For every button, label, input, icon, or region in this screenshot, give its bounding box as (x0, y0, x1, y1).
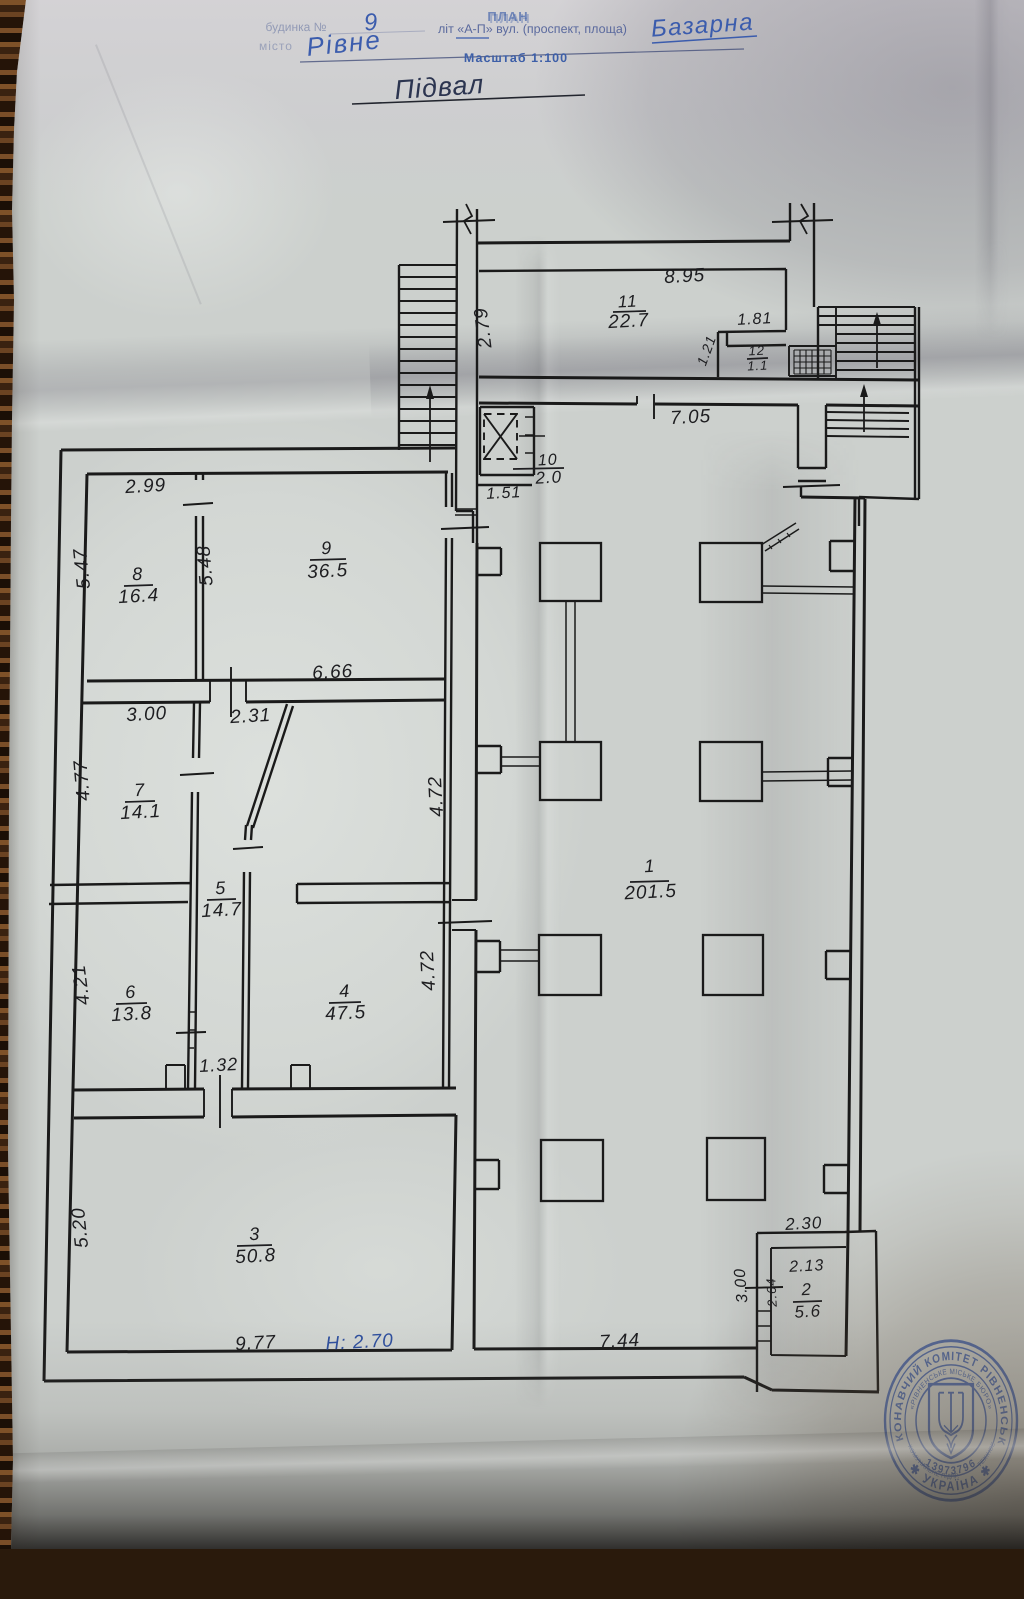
svg-text:2.0: 2.0 (534, 467, 563, 487)
svg-text:8: 8 (132, 564, 144, 585)
svg-text:4.72: 4.72 (417, 949, 440, 991)
svg-text:1.21: 1.21 (693, 333, 719, 368)
svg-text:літ «А-П» вул. (проспект, площ: літ «А-П» вул. (проспект, площа) (438, 22, 627, 36)
svg-text:47.5: 47.5 (325, 1002, 367, 1025)
svg-text:7: 7 (134, 780, 146, 801)
svg-text:8.95: 8.95 (664, 265, 706, 288)
svg-text:3.00: 3.00 (732, 1267, 752, 1303)
svg-text:3.00: 3.00 (126, 703, 168, 726)
svg-text:11: 11 (617, 292, 638, 312)
svg-text:1.51: 1.51 (486, 484, 522, 503)
svg-text:3: 3 (249, 1224, 261, 1245)
svg-text:14.7: 14.7 (201, 899, 243, 922)
svg-text:9: 9 (321, 538, 333, 559)
svg-text:13.8: 13.8 (111, 1003, 153, 1026)
svg-text:7.05: 7.05 (670, 406, 712, 429)
svg-text:2.64: 2.64 (763, 1277, 780, 1308)
svg-text:1.81: 1.81 (737, 310, 773, 329)
svg-text:місто: місто (259, 39, 293, 53)
svg-text:14.1: 14.1 (120, 801, 162, 824)
svg-text:2.99: 2.99 (124, 475, 167, 498)
svg-text:1.1: 1.1 (747, 357, 769, 373)
svg-text:2.31: 2.31 (229, 705, 272, 728)
svg-text:201.5: 201.5 (623, 881, 678, 905)
svg-text:5.48: 5.48 (193, 544, 217, 587)
svg-text:5.20: 5.20 (68, 1206, 93, 1249)
svg-text:36.5: 36.5 (307, 560, 349, 583)
svg-text:5.47: 5.47 (70, 547, 95, 590)
svg-text:6: 6 (125, 982, 137, 1003)
svg-text:4.72: 4.72 (425, 775, 448, 817)
svg-text:22.7: 22.7 (607, 310, 650, 333)
svg-text:Масштаб 1:100: Масштаб 1:100 (464, 51, 568, 65)
svg-text:1.32: 1.32 (199, 1054, 239, 1076)
svg-text:50.8: 50.8 (235, 1245, 277, 1268)
svg-text:9.77: 9.77 (235, 1332, 277, 1355)
svg-text:2.13: 2.13 (788, 1257, 825, 1276)
svg-text:6.66: 6.66 (312, 661, 354, 684)
svg-text:4.77: 4.77 (70, 759, 95, 802)
svg-text:1: 1 (644, 856, 656, 877)
svg-text:5: 5 (215, 878, 227, 899)
svg-text:4.21: 4.21 (69, 963, 95, 1006)
svg-text:16.4: 16.4 (118, 585, 160, 608)
svg-text:2.30: 2.30 (784, 1213, 823, 1234)
svg-text:7.44: 7.44 (599, 1330, 641, 1353)
svg-text:2.79: 2.79 (471, 306, 497, 350)
svg-text:12: 12 (748, 343, 765, 359)
svg-text:5.6: 5.6 (794, 1301, 822, 1321)
svg-text:H: 2.70: H: 2.70 (325, 1330, 394, 1355)
svg-text:4: 4 (339, 981, 351, 1002)
svg-text:2: 2 (800, 1280, 812, 1300)
